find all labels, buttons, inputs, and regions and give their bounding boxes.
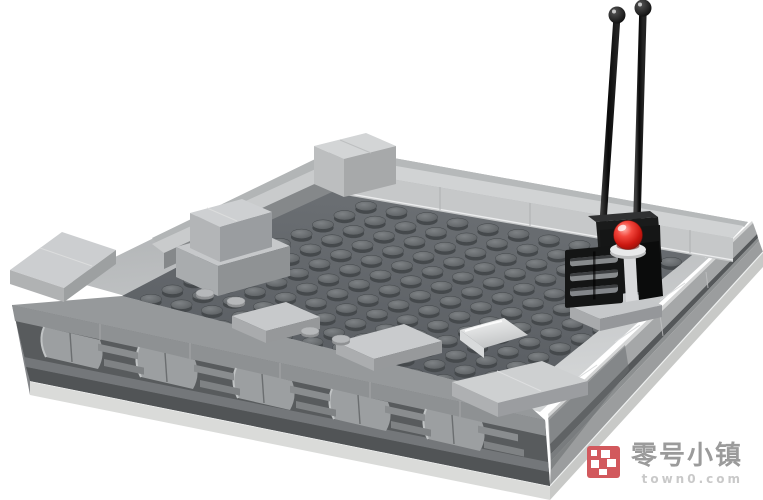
watermark-brand-text: 零号小镇 [631, 442, 743, 471]
watermark-domain-text: town0.com [642, 472, 743, 486]
antenna-ball [635, 0, 652, 17]
watermark-text: 零号小镇 town0.com [631, 442, 743, 486]
watermark-logo-icon [587, 446, 620, 478]
lego-model-illustration [0, 0, 763, 500]
product-photo: 零号小镇 town0.com [0, 0, 763, 500]
watermark: 零号小镇 town0.com [587, 442, 743, 486]
antenna-ball [609, 7, 626, 24]
red-dome [614, 221, 643, 250]
